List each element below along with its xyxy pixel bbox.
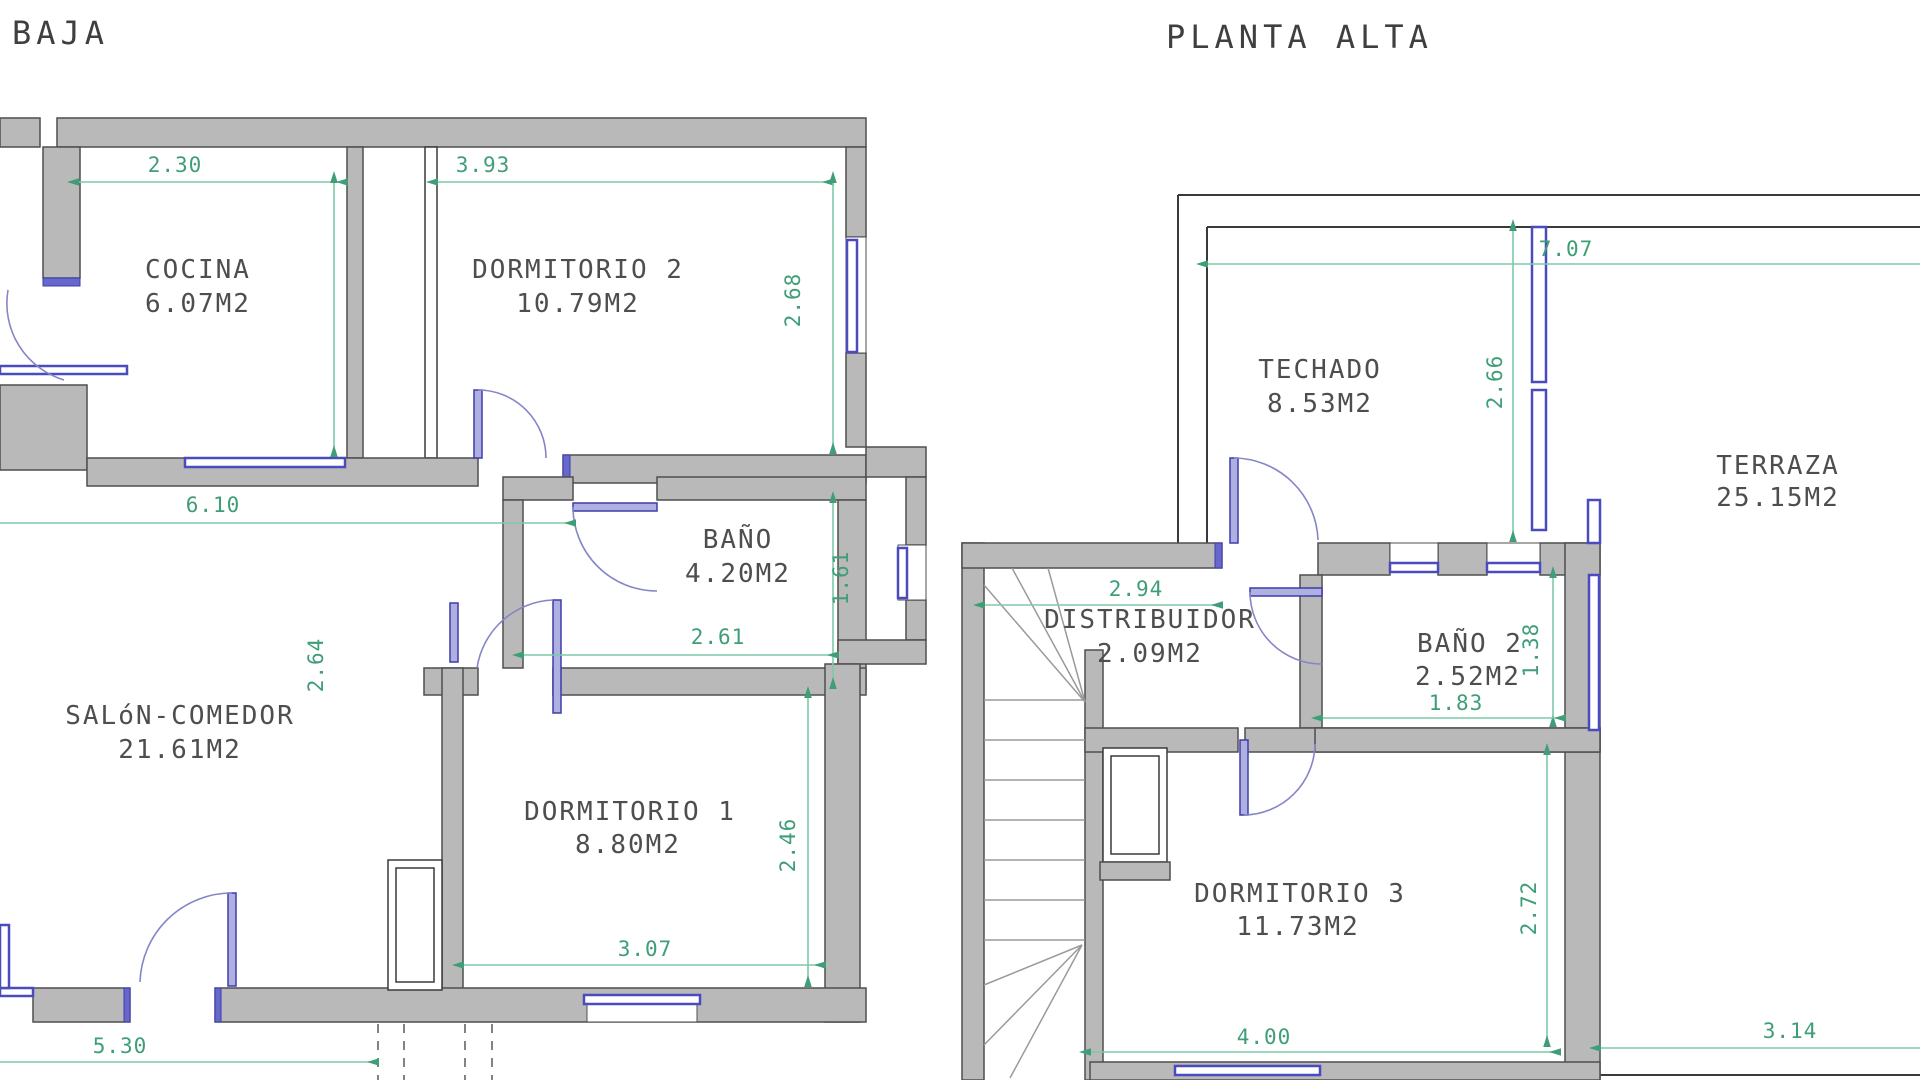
room-label-distribuidor: DISTRIBUIDOR: [1044, 605, 1256, 635]
wall-top-right-b: [1438, 543, 1487, 575]
thin-wall-duct: [425, 147, 437, 458]
wall-bano-left: [503, 500, 523, 668]
window-dorm2: [847, 240, 857, 352]
room-area-dormitorio-3: 11.73M2: [1236, 912, 1360, 942]
dim-label-salon-width: 5.30: [93, 1034, 148, 1058]
door-arc-dorm3: [1244, 744, 1315, 815]
door-arc-techado: [1234, 458, 1318, 540]
door-leaf-dorm3: [1240, 740, 1248, 815]
window-dorm1: [584, 995, 700, 1004]
window-salon-left: [0, 925, 9, 988]
dim-label-bano2-width: 1.83: [1429, 691, 1484, 715]
wall-bump-bottom: [838, 640, 926, 664]
door-arc-bano: [573, 507, 657, 591]
dim-label-cocina-width: 2.30: [148, 153, 203, 177]
floorplan-drawing: BAJA PLANTA ALTA: [0, 0, 1920, 1080]
wall-bottom: [215, 988, 866, 1022]
window-left: [0, 366, 127, 374]
window-bano: [898, 548, 907, 598]
stair-winder: [984, 945, 1082, 985]
wall-bano-top-right: [657, 477, 866, 500]
door-leaf-bano: [573, 503, 657, 511]
dim-label-distribuidor-width: 2.94: [1109, 577, 1164, 601]
room-label-dormitorio-2: DORMITORIO 2: [472, 255, 684, 285]
dim-label-dorm3-height: 2.72: [1517, 881, 1541, 936]
pillar-closet-inner: [396, 868, 434, 982]
wall: [0, 118, 40, 147]
window-cocina: [185, 458, 345, 467]
wall-bump-right-lower: [906, 600, 926, 640]
dim-label-hall-width: 6.10: [186, 493, 241, 517]
door-arc-salon: [140, 893, 232, 982]
wall-top: [57, 118, 866, 147]
closet-base: [1100, 862, 1170, 880]
wall-cap: [1215, 543, 1222, 568]
wall-salon-dorm1: [442, 668, 463, 1000]
wall-dorm3-bottom: [1090, 1062, 1600, 1080]
wall-cap: [215, 988, 221, 1022]
stair-winder: [1012, 568, 1085, 702]
room-area-salon-comedor: 21.61M2: [118, 735, 242, 765]
door-leaf-salon: [228, 893, 236, 986]
plan-alta: 7.07 2.66 2.94 1.38 1.83 2.72 4.00 3.14 …: [962, 195, 1920, 1080]
room-label-dormitorio-1: DORMITORIO 1: [524, 797, 736, 827]
door-leaf-cocina: [474, 390, 482, 458]
doors-baja: [7, 290, 657, 986]
roof-outline: [1178, 195, 1920, 1075]
room-label-bano: BAÑO: [703, 523, 774, 555]
dim-label-dorm1-width: 3.07: [618, 937, 673, 961]
window-dorm3: [1175, 1066, 1320, 1075]
room-label-salon-comedor: SALóN-COMEDOR: [65, 701, 295, 731]
wall-bump-right-upper: [906, 477, 926, 545]
door-leaf-techado: [1230, 458, 1238, 543]
section-lines: [378, 1024, 492, 1080]
door-leaf-bano2: [1250, 588, 1322, 596]
wall-bump-top: [866, 447, 926, 477]
wall-bano-top-left: [503, 477, 573, 500]
closet-dorm3-inner: [1111, 756, 1159, 854]
plan-baja: 2.30 3.93 2.64 2.68 6.10 1.61 2.61 2.46 …: [0, 118, 926, 1080]
wall-partition-cocina: [347, 147, 363, 458]
dim-label-dorm3-width: 4.00: [1237, 1025, 1292, 1049]
dim-label-dorm1-height: 2.46: [776, 818, 800, 873]
window-jog: [1588, 500, 1600, 543]
wall-left: [962, 543, 984, 1080]
room-area-distribuidor: 2.09M2: [1097, 639, 1203, 669]
window-recess: [587, 1003, 697, 1022]
room-area-techado: 8.53M2: [1267, 389, 1373, 419]
room-area-bano: 4.20M2: [685, 559, 791, 589]
room-area-dormitorio-1: 8.80M2: [575, 830, 681, 860]
wall-cap: [124, 988, 130, 1022]
room-label-terraza: TERRAZA: [1716, 451, 1840, 481]
wall-cap: [43, 278, 80, 286]
stair-winder: [984, 945, 1082, 1045]
window-bano2-b: [1487, 563, 1540, 572]
wall-left-chunk: [0, 385, 87, 470]
room-area-dormitorio-2: 10.79M2: [516, 289, 640, 319]
window-techado-terraza-lower: [1532, 390, 1546, 530]
stair-winder: [1048, 568, 1085, 702]
room-label-bano-2: BAÑO 2: [1417, 627, 1523, 659]
window-bano2-a: [1390, 563, 1438, 572]
wall-dorm1-right: [825, 664, 860, 1022]
door-arc-cocina: [478, 390, 546, 458]
room-area-terraza: 25.15M2: [1716, 483, 1840, 513]
staircase: [984, 568, 1085, 1078]
dim-label-bano-width: 2.61: [691, 625, 746, 649]
title-planta-alta: PLANTA ALTA: [1166, 18, 1433, 56]
stair-winder: [984, 585, 1085, 702]
wall-bano2-left: [1300, 575, 1322, 728]
door-leaf-dorm1: [553, 600, 561, 713]
room-label-dormitorio-3: DORMITORIO 3: [1194, 879, 1406, 909]
stair-winder: [1010, 945, 1082, 1078]
dim-label-dorm2-height: 2.68: [781, 273, 805, 328]
dim-label-cocina-height: 2.64: [304, 638, 328, 693]
dim-label-dorm2-width: 3.93: [456, 153, 511, 177]
floorplan-canvas: BAJA PLANTA ALTA: [0, 0, 1920, 1080]
window-bano2-terraza: [1589, 575, 1599, 730]
wall-pillar: [43, 147, 80, 278]
dim-label-terraza-bottom-width: 3.14: [1763, 1019, 1818, 1043]
room-label-cocina: COCINA: [145, 255, 251, 285]
title-planta-baja: BAJA: [12, 14, 109, 52]
wall-right-upper: [846, 147, 866, 237]
dim-label-terraza-width: 7.07: [1539, 237, 1594, 261]
dim-label-techado-height: 2.66: [1483, 355, 1507, 410]
wall-right: [846, 353, 866, 447]
wall-bottom-left: [33, 988, 130, 1022]
room-area-bano-2: 2.52M2: [1415, 662, 1521, 692]
wall-dorm1-top: [553, 668, 866, 695]
wall-distribuidor-top: [962, 543, 1222, 568]
room-area-cocina: 6.07M2: [145, 289, 251, 319]
wall-dorm3-top-right: [1315, 728, 1600, 752]
room-label-techado: TECHADO: [1258, 355, 1382, 385]
door-leaf-hall: [450, 603, 458, 662]
wall-top-right-a: [1318, 543, 1390, 575]
dim-label-bano-height: 1.61: [829, 551, 853, 606]
